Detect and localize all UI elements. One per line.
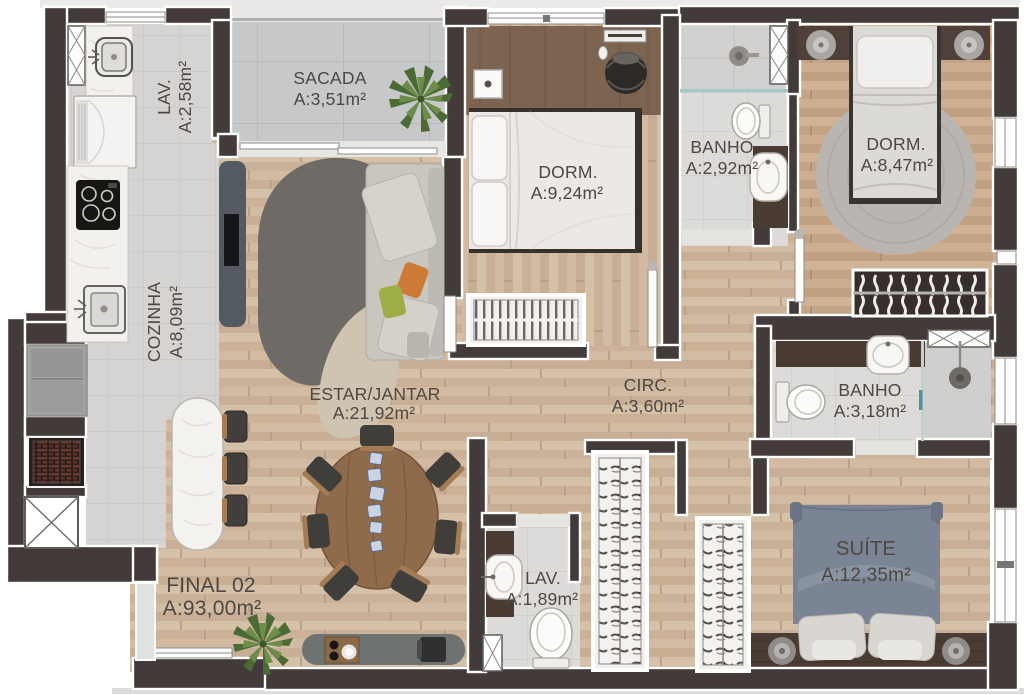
svg-text:A:8,47m²: A:8,47m² [861,155,934,175]
svg-text:A:2,58m²: A:2,58m² [175,61,195,134]
svg-text:A:8,09m²: A:8,09m² [166,286,186,359]
svg-text:BANHO: BANHO [838,380,901,400]
svg-text:FINAL 02: FINAL 02 [166,574,256,597]
svg-text:DORM.: DORM. [538,162,597,182]
svg-text:SACADA: SACADA [293,68,366,88]
svg-text:CIRC.: CIRC. [624,375,673,395]
svg-text:COZINHA: COZINHA [144,282,164,362]
svg-text:A:3,60m²: A:3,60m² [612,396,685,416]
svg-text:LAV.: LAV. [525,568,561,588]
svg-text:DORM.: DORM. [866,134,925,154]
svg-text:LAV.: LAV. [154,79,174,115]
svg-text:ESTAR/JANTAR: ESTAR/JANTAR [309,384,440,404]
svg-text:SUÍTE: SUÍTE [836,537,896,560]
svg-text:A:9,24m²: A:9,24m² [531,183,604,203]
svg-text:A:12,35m²: A:12,35m² [821,565,910,586]
svg-text:A:3,18m²: A:3,18m² [834,401,907,421]
svg-text:A:3,51m²: A:3,51m² [294,89,367,109]
svg-text:A:1,89m²: A:1,89m² [506,589,579,609]
svg-text:BANHO: BANHO [690,137,753,157]
svg-text:A:2,92m²: A:2,92m² [686,158,759,178]
svg-text:A:21,92m²: A:21,92m² [333,403,416,423]
svg-text:A:93,00m²: A:93,00m² [163,597,262,620]
